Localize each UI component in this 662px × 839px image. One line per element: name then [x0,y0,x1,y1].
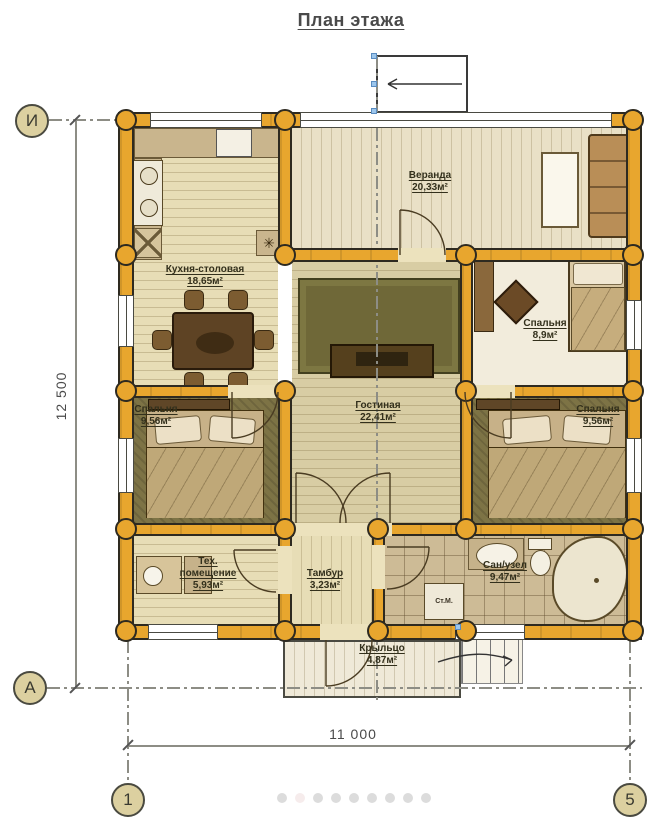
dimension-height: 12 500 [53,365,69,427]
pagination-dot[interactable] [313,793,323,803]
dresser [476,399,560,410]
window [626,438,642,493]
selection-grip[interactable] [371,81,377,87]
pillow [208,415,256,445]
dimension-line-vertical [75,120,77,688]
room-label-bedroom-right: Спальня9,56м² [558,404,638,428]
wall-segment [278,112,292,262]
wall-segment [626,112,642,640]
axis-marker-row-bottom: А [13,671,47,705]
log-joint [115,109,137,131]
blanket [147,447,263,518]
log-joint [622,518,644,540]
pagination-dot[interactable] [295,793,305,803]
blanket [489,447,625,518]
washing-machine-label: Ст.М. [425,584,463,619]
log-joint [455,244,477,266]
pagination-dot[interactable] [421,793,431,803]
chair [228,290,248,310]
chair [152,330,172,350]
pagination-dot[interactable] [385,793,395,803]
kitchen-cabinet [134,228,162,258]
window [118,438,134,493]
entrance-stairs [376,55,468,113]
dimension-line-horizontal [128,745,630,747]
log-joint [274,109,296,131]
log-joint [367,518,389,540]
window [118,295,134,347]
kitchen-counter-top [134,128,282,158]
pagination-dot[interactable] [367,793,377,803]
window [626,300,642,350]
selection-grip[interactable] [455,624,461,630]
selection-grip[interactable] [371,53,377,59]
log-joint [622,109,644,131]
room-label-porch: Крыльцо4,87м² [342,643,422,667]
pagination-dot[interactable] [403,793,413,803]
boiler-dial-icon [143,566,163,586]
window [148,624,218,640]
log-joint [115,380,137,402]
room-label-veranda: Веранда20,33м² [390,170,470,194]
fridge [216,129,252,157]
washing-machine: Ст.М. [424,583,464,620]
tv-screen [356,352,408,366]
room-label-tambur: Тамбур3,23м² [290,568,360,592]
selection-grip[interactable] [371,108,377,114]
pagination-dot[interactable] [349,793,359,803]
log-joint [455,380,477,402]
wall-segment [278,385,292,638]
chair [184,290,204,310]
axis-line-top [49,119,118,121]
stove [133,160,163,226]
room-label-living: Гостиная22,41м² [338,400,418,424]
axis-line-left [127,640,129,784]
drain-icon [594,578,599,583]
veranda-table [541,152,579,228]
log-joint [622,620,644,642]
toilet-tank [528,538,552,550]
log-joint [115,244,137,266]
log-joint [367,620,389,642]
door-opening [372,545,385,589]
pagination-dot[interactable] [331,793,341,803]
log-joint [115,620,137,642]
log-joint [274,380,296,402]
axis-marker-col-right: 5 [613,783,647,817]
dining-table [172,312,254,370]
wall-segment [118,112,134,640]
wardrobe [474,260,494,332]
pillow [573,263,623,285]
log-joint [274,620,296,642]
log-joint [274,518,296,540]
tv-bench [330,344,434,378]
room-label-bedroom-left: Спальня9,56м² [116,404,196,428]
pillow [502,415,552,445]
axis-marker-col-left: 1 [111,783,145,817]
log-joint [622,380,644,402]
log-joint [115,518,137,540]
pagination-dot[interactable] [277,793,287,803]
room-label-bathroom: Сан/узел9,47м² [465,560,545,584]
door-opening [228,385,278,398]
room-label-kitchen: Кухня-столовая18,65м² [140,264,270,288]
page-title: План этажа [231,10,471,31]
floor-plan-page: План этажа [0,0,662,839]
axis-marker-row-top: И [15,104,49,138]
axis-line-right [629,640,631,784]
dimension-width: 11 000 [318,726,388,742]
stove-burner-icon [140,167,158,185]
window [300,112,612,128]
door-opening [398,248,446,262]
chair [254,330,274,350]
pagination-dots [277,793,431,803]
log-joint [455,518,477,540]
log-joint [622,244,644,266]
table-centerpiece [196,332,234,354]
room-label-bedroom-small: Спальня8,9м² [505,318,585,342]
log-joint [274,244,296,266]
stove-burner-icon [140,199,158,217]
room-label-tech: Тех. помещение5,93м² [172,556,244,592]
window [150,112,262,128]
axis-line-bottom [47,687,642,689]
